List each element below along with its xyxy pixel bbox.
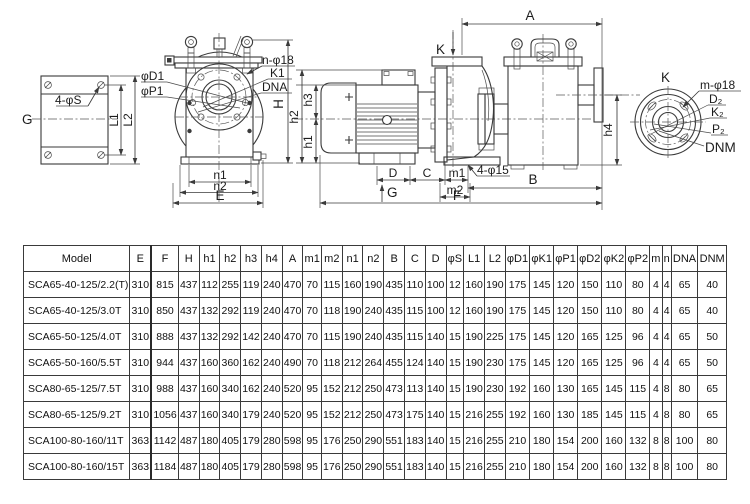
value-cell: 280 [261, 454, 282, 480]
dim-d: D [389, 166, 398, 180]
callout-dna: DNA [262, 80, 287, 94]
value-cell: 95 [303, 376, 322, 402]
casing-backplate [435, 68, 447, 162]
value-cell: 179 [241, 454, 262, 480]
drain-plug [253, 152, 261, 160]
value-cell: 292 [220, 324, 241, 350]
value-cell: 115 [321, 324, 342, 350]
value-cell: 8 [662, 428, 671, 454]
header-cell-B: B [384, 246, 405, 272]
header-cell-φD2: φD2 [577, 246, 601, 272]
value-cell: 70 [303, 324, 322, 350]
header-cell-h3: h3 [241, 246, 262, 272]
value-cell: 15 [446, 454, 464, 480]
value-cell: 175 [505, 272, 529, 298]
value-cell: 240 [261, 376, 282, 402]
value-cell: 80 [698, 454, 727, 480]
value-cell: 15 [446, 376, 464, 402]
value-cell: 8 [650, 454, 662, 480]
value-cell: 815 [151, 272, 178, 298]
value-cell: 110 [602, 272, 626, 298]
value-cell: 8 [662, 376, 671, 402]
value-cell: 230 [484, 376, 505, 402]
value-cell: 15 [446, 402, 464, 428]
value-cell: 65 [671, 324, 698, 350]
page: G 4-φS L1 L2 [0, 0, 750, 504]
value-cell: 360 [220, 350, 241, 376]
value-cell: 190 [363, 272, 384, 298]
dimension-table-section: ModelEFHh1h2h3h4Am1m2n1n2BCDφSL1L2φD1φK1… [23, 245, 727, 480]
table-row: SCA65-40-125/2.2(T)310815437112255119240… [24, 272, 727, 298]
value-cell: 190 [342, 298, 363, 324]
table-row: SCA100-80-160/11T36311424871804051792805… [24, 428, 727, 454]
value-cell: 212 [342, 402, 363, 428]
value-cell: 154 [554, 454, 578, 480]
value-cell: 142 [241, 324, 262, 350]
callout-k1: K1 [270, 66, 285, 80]
value-cell: 175 [505, 324, 529, 350]
value-cell: 150 [577, 272, 601, 298]
value-cell: 160 [602, 454, 626, 480]
value-cell: 132 [626, 454, 650, 480]
value-cell: 280 [261, 428, 282, 454]
model-cell: SCA80-65-125/9.2T [24, 402, 130, 428]
header-cell-DNA: DNA [671, 246, 698, 272]
value-cell: 124 [405, 350, 426, 376]
view-mounting-plate: G 4-φS L1 L2 [22, 76, 140, 164]
header-cell-h1: h1 [199, 246, 220, 272]
plate-holes-label: 4-φS [55, 93, 81, 107]
model-cell: SCA80-65-125/7.5T [24, 376, 130, 402]
value-cell: 250 [363, 376, 384, 402]
value-cell: 145 [530, 350, 554, 376]
value-cell: 8 [662, 454, 671, 480]
value-cell: 80 [671, 402, 698, 428]
model-cell: SCA100-80-160/15T [24, 454, 130, 480]
value-cell: 216 [464, 402, 485, 428]
header-cell-φP2: φP2 [626, 246, 650, 272]
dim-h3: h3 [301, 93, 315, 107]
value-cell: 210 [505, 454, 529, 480]
value-cell: 70 [303, 350, 322, 376]
value-cell: 183 [405, 428, 426, 454]
value-cell: 65 [671, 350, 698, 376]
value-cell: 118 [321, 298, 342, 324]
dim-c: C [423, 166, 432, 180]
header-cell-h4: h4 [261, 246, 282, 272]
value-cell: 520 [282, 402, 303, 428]
value-cell: 162 [241, 376, 262, 402]
value-cell: 120 [554, 350, 578, 376]
value-cell: 145 [530, 272, 554, 298]
value-cell: 130 [554, 376, 578, 402]
lifting-mark [345, 93, 353, 144]
header-cell-H: H [178, 246, 199, 272]
value-cell: 240 [363, 298, 384, 324]
dim-k-side: K [436, 42, 445, 57]
dimension-table-head: ModelEFHh1h2h3h4Am1m2n1n2BCDφSL1L2φD1φK1… [24, 246, 727, 272]
value-cell: 405 [220, 428, 241, 454]
header-cell-m2: m2 [321, 246, 342, 272]
header-cell-φK1: φK1 [530, 246, 554, 272]
value-cell: 15 [446, 350, 464, 376]
header-cell-n: n [662, 246, 671, 272]
value-cell: 65 [671, 298, 698, 324]
value-cell: 255 [484, 402, 505, 428]
value-cell: 200 [577, 428, 601, 454]
value-cell: 4 [662, 298, 671, 324]
table-row: SCA80-65-125/9.2T31010564371603401792405… [24, 402, 727, 428]
drain-label-g: G [22, 112, 33, 127]
view-pump-front: φD1 φP1 n-φ18 K1 DNA H n1 n2 E [141, 33, 295, 208]
table-row: SCA80-65-125/7.5T31098843716034016224052… [24, 376, 727, 402]
header-cell-n1: n1 [342, 246, 363, 272]
value-cell: 4 [650, 324, 662, 350]
motor [321, 70, 418, 164]
callout-m-phi18: m-φ18 [700, 78, 735, 92]
value-cell: 80 [626, 298, 650, 324]
value-cell: 437 [178, 324, 199, 350]
value-cell: 230 [484, 350, 505, 376]
value-cell: 255 [484, 454, 505, 480]
value-cell: 363 [130, 428, 151, 454]
value-cell: 160 [199, 402, 220, 428]
table-row: SCA65-50-125/4.0T31088843713229214224047… [24, 324, 727, 350]
dim-a: A [525, 8, 534, 23]
dim-b: B [528, 172, 537, 187]
value-cell: 115 [626, 376, 650, 402]
value-cell: 160 [342, 272, 363, 298]
value-cell: 183 [405, 454, 426, 480]
header-cell-E: E [130, 246, 151, 272]
value-cell: 115 [321, 272, 342, 298]
value-cell: 435 [384, 298, 405, 324]
value-cell: 140 [425, 428, 446, 454]
value-cell: 212 [342, 350, 363, 376]
value-cell: 888 [151, 324, 178, 350]
value-cell: 190 [464, 324, 485, 350]
value-cell: 132 [626, 428, 650, 454]
callout-phi-p1: φP1 [141, 84, 164, 98]
value-cell: 165 [577, 350, 601, 376]
value-cell: 4 [650, 272, 662, 298]
value-cell: 240 [261, 350, 282, 376]
dim-e: E [215, 188, 224, 203]
value-cell: 145 [602, 376, 626, 402]
value-cell: 115 [405, 298, 426, 324]
table-row: SCA65-40-125/3.0T31085043713229211924047… [24, 298, 727, 324]
value-cell: 80 [626, 272, 650, 298]
model-cell: SCA65-40-125/2.2(T) [24, 272, 130, 298]
value-cell: 65 [698, 376, 727, 402]
value-cell: 175 [505, 298, 529, 324]
value-cell: 4 [650, 298, 662, 324]
value-cell: 185 [577, 402, 601, 428]
volute-casing [447, 66, 494, 160]
value-cell: 180 [199, 428, 220, 454]
value-cell: 15 [446, 428, 464, 454]
value-cell: 180 [530, 428, 554, 454]
dim-h: H [271, 99, 286, 109]
value-cell: 473 [384, 402, 405, 428]
header-cell-φP1: φP1 [554, 246, 578, 272]
value-cell: 340 [220, 376, 241, 402]
strainer-housing [504, 34, 582, 170]
value-cell: 70 [303, 298, 322, 324]
suction-flange-side [432, 57, 482, 66]
value-cell: 15 [446, 324, 464, 350]
value-cell: 150 [577, 298, 601, 324]
value-cell: 95 [303, 402, 322, 428]
value-cell: 160 [464, 272, 485, 298]
value-cell: 160 [530, 376, 554, 402]
value-cell: 118 [321, 350, 342, 376]
value-cell: 225 [484, 324, 505, 350]
value-cell: 200 [577, 454, 601, 480]
pump-technical-drawing: G 4-φS L1 L2 [0, 0, 750, 244]
value-cell: 551 [384, 454, 405, 480]
value-cell: 310 [130, 298, 151, 324]
value-cell: 95 [303, 428, 322, 454]
value-cell: 310 [130, 324, 151, 350]
value-cell: 437 [178, 272, 199, 298]
value-cell: 100 [425, 298, 446, 324]
value-cell: 437 [178, 298, 199, 324]
dimension-table: ModelEFHh1h2h3h4Am1m2n1n2BCDφSL1L2φD1φK1… [23, 245, 727, 480]
value-cell: 310 [130, 402, 151, 428]
value-cell: 250 [342, 428, 363, 454]
value-cell: 179 [241, 428, 262, 454]
header-cell-m1: m1 [303, 246, 322, 272]
dim-h4: h4 [601, 123, 615, 137]
value-cell: 212 [342, 376, 363, 402]
value-cell: 850 [151, 298, 178, 324]
value-cell: 240 [363, 324, 384, 350]
value-cell: 112 [199, 272, 220, 298]
value-cell: 165 [577, 376, 601, 402]
value-cell: 110 [602, 298, 626, 324]
value-cell: 165 [577, 324, 601, 350]
value-cell: 240 [261, 402, 282, 428]
value-cell: 551 [384, 428, 405, 454]
value-cell: 8 [662, 402, 671, 428]
header-cell-DNM: DNM [698, 246, 727, 272]
value-cell: 120 [554, 298, 578, 324]
value-cell: 473 [384, 376, 405, 402]
value-cell: 120 [554, 324, 578, 350]
value-cell: 250 [363, 402, 384, 428]
value-cell: 255 [220, 272, 241, 298]
value-cell: 944 [151, 350, 178, 376]
value-cell: 4 [662, 324, 671, 350]
value-cell: 140 [425, 350, 446, 376]
value-cell: 435 [384, 272, 405, 298]
value-cell: 190 [342, 324, 363, 350]
model-cell: SCA65-50-125/4.0T [24, 324, 130, 350]
value-cell: 179 [241, 402, 262, 428]
value-cell: 152 [321, 402, 342, 428]
value-cell: 65 [671, 272, 698, 298]
value-cell: 470 [282, 272, 303, 298]
value-cell: 160 [464, 298, 485, 324]
value-cell: 310 [130, 272, 151, 298]
value-cell: 119 [241, 298, 262, 324]
value-cell: 12 [446, 272, 464, 298]
value-cell: 8 [650, 428, 662, 454]
value-cell: 96 [626, 350, 650, 376]
value-cell: 160 [199, 350, 220, 376]
value-cell: 12 [446, 298, 464, 324]
dim-k-end: K [661, 70, 670, 85]
base-holes-label: 4-φ15 [477, 163, 509, 177]
value-cell: 4 [650, 350, 662, 376]
value-cell: 50 [698, 324, 727, 350]
value-cell: 120 [554, 272, 578, 298]
value-cell: 240 [261, 324, 282, 350]
value-cell: 175 [405, 402, 426, 428]
value-cell: 95 [303, 454, 322, 480]
value-cell: 470 [282, 298, 303, 324]
header-cell-A: A [282, 246, 303, 272]
value-cell: 132 [199, 324, 220, 350]
value-cell: 125 [602, 324, 626, 350]
value-cell: 487 [178, 428, 199, 454]
callout-phi-d1: φD1 [141, 69, 164, 83]
value-cell: 132 [199, 298, 220, 324]
table-row: SCA65-50-160/5.5T31094443716036016224049… [24, 350, 727, 376]
callout-dnm: DNM [705, 140, 736, 155]
value-cell: 216 [464, 454, 485, 480]
dim-h2: h2 [287, 110, 301, 124]
value-cell: 598 [282, 454, 303, 480]
value-cell: 405 [220, 454, 241, 480]
value-cell: 140 [425, 402, 446, 428]
value-cell: 190 [484, 272, 505, 298]
value-cell: 145 [530, 324, 554, 350]
header-cell-C: C [405, 246, 426, 272]
table-row: SCA100-80-160/15T36311844871804051792805… [24, 454, 727, 480]
header-cell-m: m [650, 246, 662, 272]
value-cell: 50 [698, 350, 727, 376]
model-cell: SCA100-80-160/11T [24, 428, 130, 454]
header-cell-D: D [425, 246, 446, 272]
value-cell: 264 [363, 350, 384, 376]
callout-k2: K₂ [711, 105, 724, 119]
view-discharge-end: K m-φ18 D₂ K₂ P₂ DNM [630, 70, 741, 158]
value-cell: 154 [554, 428, 578, 454]
value-cell: 4 [662, 350, 671, 376]
value-cell: 190 [464, 350, 485, 376]
header-cell-Model: Model [24, 246, 130, 272]
value-cell: 190 [484, 298, 505, 324]
value-cell: 152 [321, 376, 342, 402]
value-cell: 80 [698, 428, 727, 454]
value-cell: 119 [241, 272, 262, 298]
dim-g-side: G [387, 185, 398, 200]
value-cell: 40 [698, 298, 727, 324]
value-cell: 190 [464, 376, 485, 402]
header-cell-L2: L2 [484, 246, 505, 272]
value-cell: 4 [650, 402, 662, 428]
value-cell: 192 [505, 376, 529, 402]
value-cell: 40 [698, 272, 727, 298]
value-cell: 4 [650, 376, 662, 402]
terminal-box [382, 70, 415, 85]
value-cell: 455 [384, 350, 405, 376]
value-cell: 1142 [151, 428, 178, 454]
dim-l1: L1 [107, 113, 121, 127]
value-cell: 216 [464, 428, 485, 454]
value-cell: 437 [178, 376, 199, 402]
value-cell: 100 [425, 272, 446, 298]
value-cell: 437 [178, 350, 199, 376]
value-cell: 115 [626, 402, 650, 428]
value-cell: 240 [261, 298, 282, 324]
value-cell: 96 [626, 324, 650, 350]
value-cell: 160 [530, 402, 554, 428]
value-cell: 65 [698, 402, 727, 428]
value-cell: 125 [602, 350, 626, 376]
view-pump-side: K A h2 [287, 8, 640, 210]
value-cell: 598 [282, 428, 303, 454]
value-cell: 340 [220, 402, 241, 428]
value-cell: 140 [425, 454, 446, 480]
value-cell: 100 [671, 428, 698, 454]
value-cell: 192 [505, 402, 529, 428]
value-cell: 100 [671, 454, 698, 480]
value-cell: 70 [303, 272, 322, 298]
value-cell: 1184 [151, 454, 178, 480]
value-cell: 130 [554, 402, 578, 428]
value-cell: 140 [425, 324, 446, 350]
value-cell: 437 [178, 402, 199, 428]
dimension-table-body: SCA65-40-125/2.2(T)310815437112255119240… [24, 272, 727, 480]
value-cell: 160 [602, 428, 626, 454]
value-cell: 140 [425, 376, 446, 402]
value-cell: 1056 [151, 402, 178, 428]
value-cell: 520 [282, 376, 303, 402]
dim-m1: m1 [449, 166, 466, 180]
value-cell: 310 [130, 350, 151, 376]
value-cell: 290 [363, 454, 384, 480]
value-cell: 435 [384, 324, 405, 350]
value-cell: 80 [671, 376, 698, 402]
motor-badge [383, 116, 392, 125]
value-cell: 145 [530, 298, 554, 324]
value-cell: 145 [602, 402, 626, 428]
header-cell-φS: φS [446, 246, 464, 272]
vent-plug [214, 38, 225, 49]
value-cell: 4 [662, 272, 671, 298]
dim-l2: L2 [121, 113, 135, 127]
value-cell: 490 [282, 350, 303, 376]
value-cell: 470 [282, 324, 303, 350]
value-cell: 292 [220, 298, 241, 324]
value-cell: 113 [405, 376, 426, 402]
value-cell: 176 [321, 454, 342, 480]
dim-f: F [453, 188, 461, 203]
value-cell: 240 [261, 272, 282, 298]
header-cell-L1: L1 [464, 246, 485, 272]
value-cell: 363 [130, 454, 151, 480]
model-cell: SCA65-50-160/5.5T [24, 350, 130, 376]
value-cell: 176 [321, 428, 342, 454]
value-cell: 255 [484, 428, 505, 454]
value-cell: 310 [130, 376, 151, 402]
value-cell: 290 [363, 428, 384, 454]
header-cell-φD1: φD1 [505, 246, 529, 272]
value-cell: 175 [505, 350, 529, 376]
